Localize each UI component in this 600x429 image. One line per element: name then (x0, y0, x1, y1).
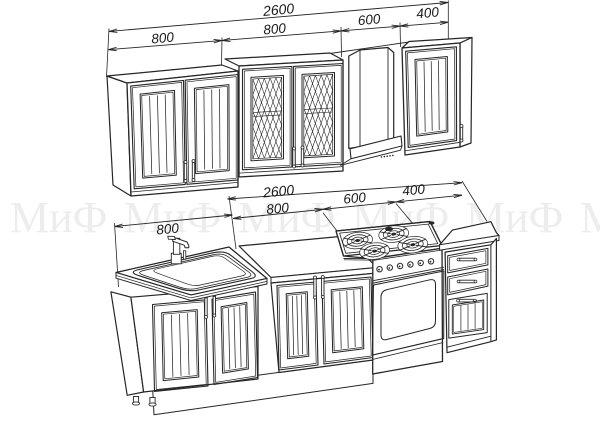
svg-text:400: 400 (402, 181, 426, 198)
svg-text:2600: 2600 (261, 0, 295, 19)
svg-text:600: 600 (357, 11, 381, 28)
svg-text:800: 800 (151, 29, 175, 46)
svg-text:МиФ: МиФ (580, 193, 600, 242)
svg-text:800: 800 (263, 20, 287, 37)
svg-text:800: 800 (156, 220, 180, 237)
svg-text:МиФ: МиФ (10, 193, 107, 242)
svg-text:400: 400 (416, 4, 440, 21)
svg-text:2600: 2600 (261, 182, 295, 201)
svg-text:600: 600 (343, 190, 367, 207)
svg-text:800: 800 (266, 200, 290, 217)
